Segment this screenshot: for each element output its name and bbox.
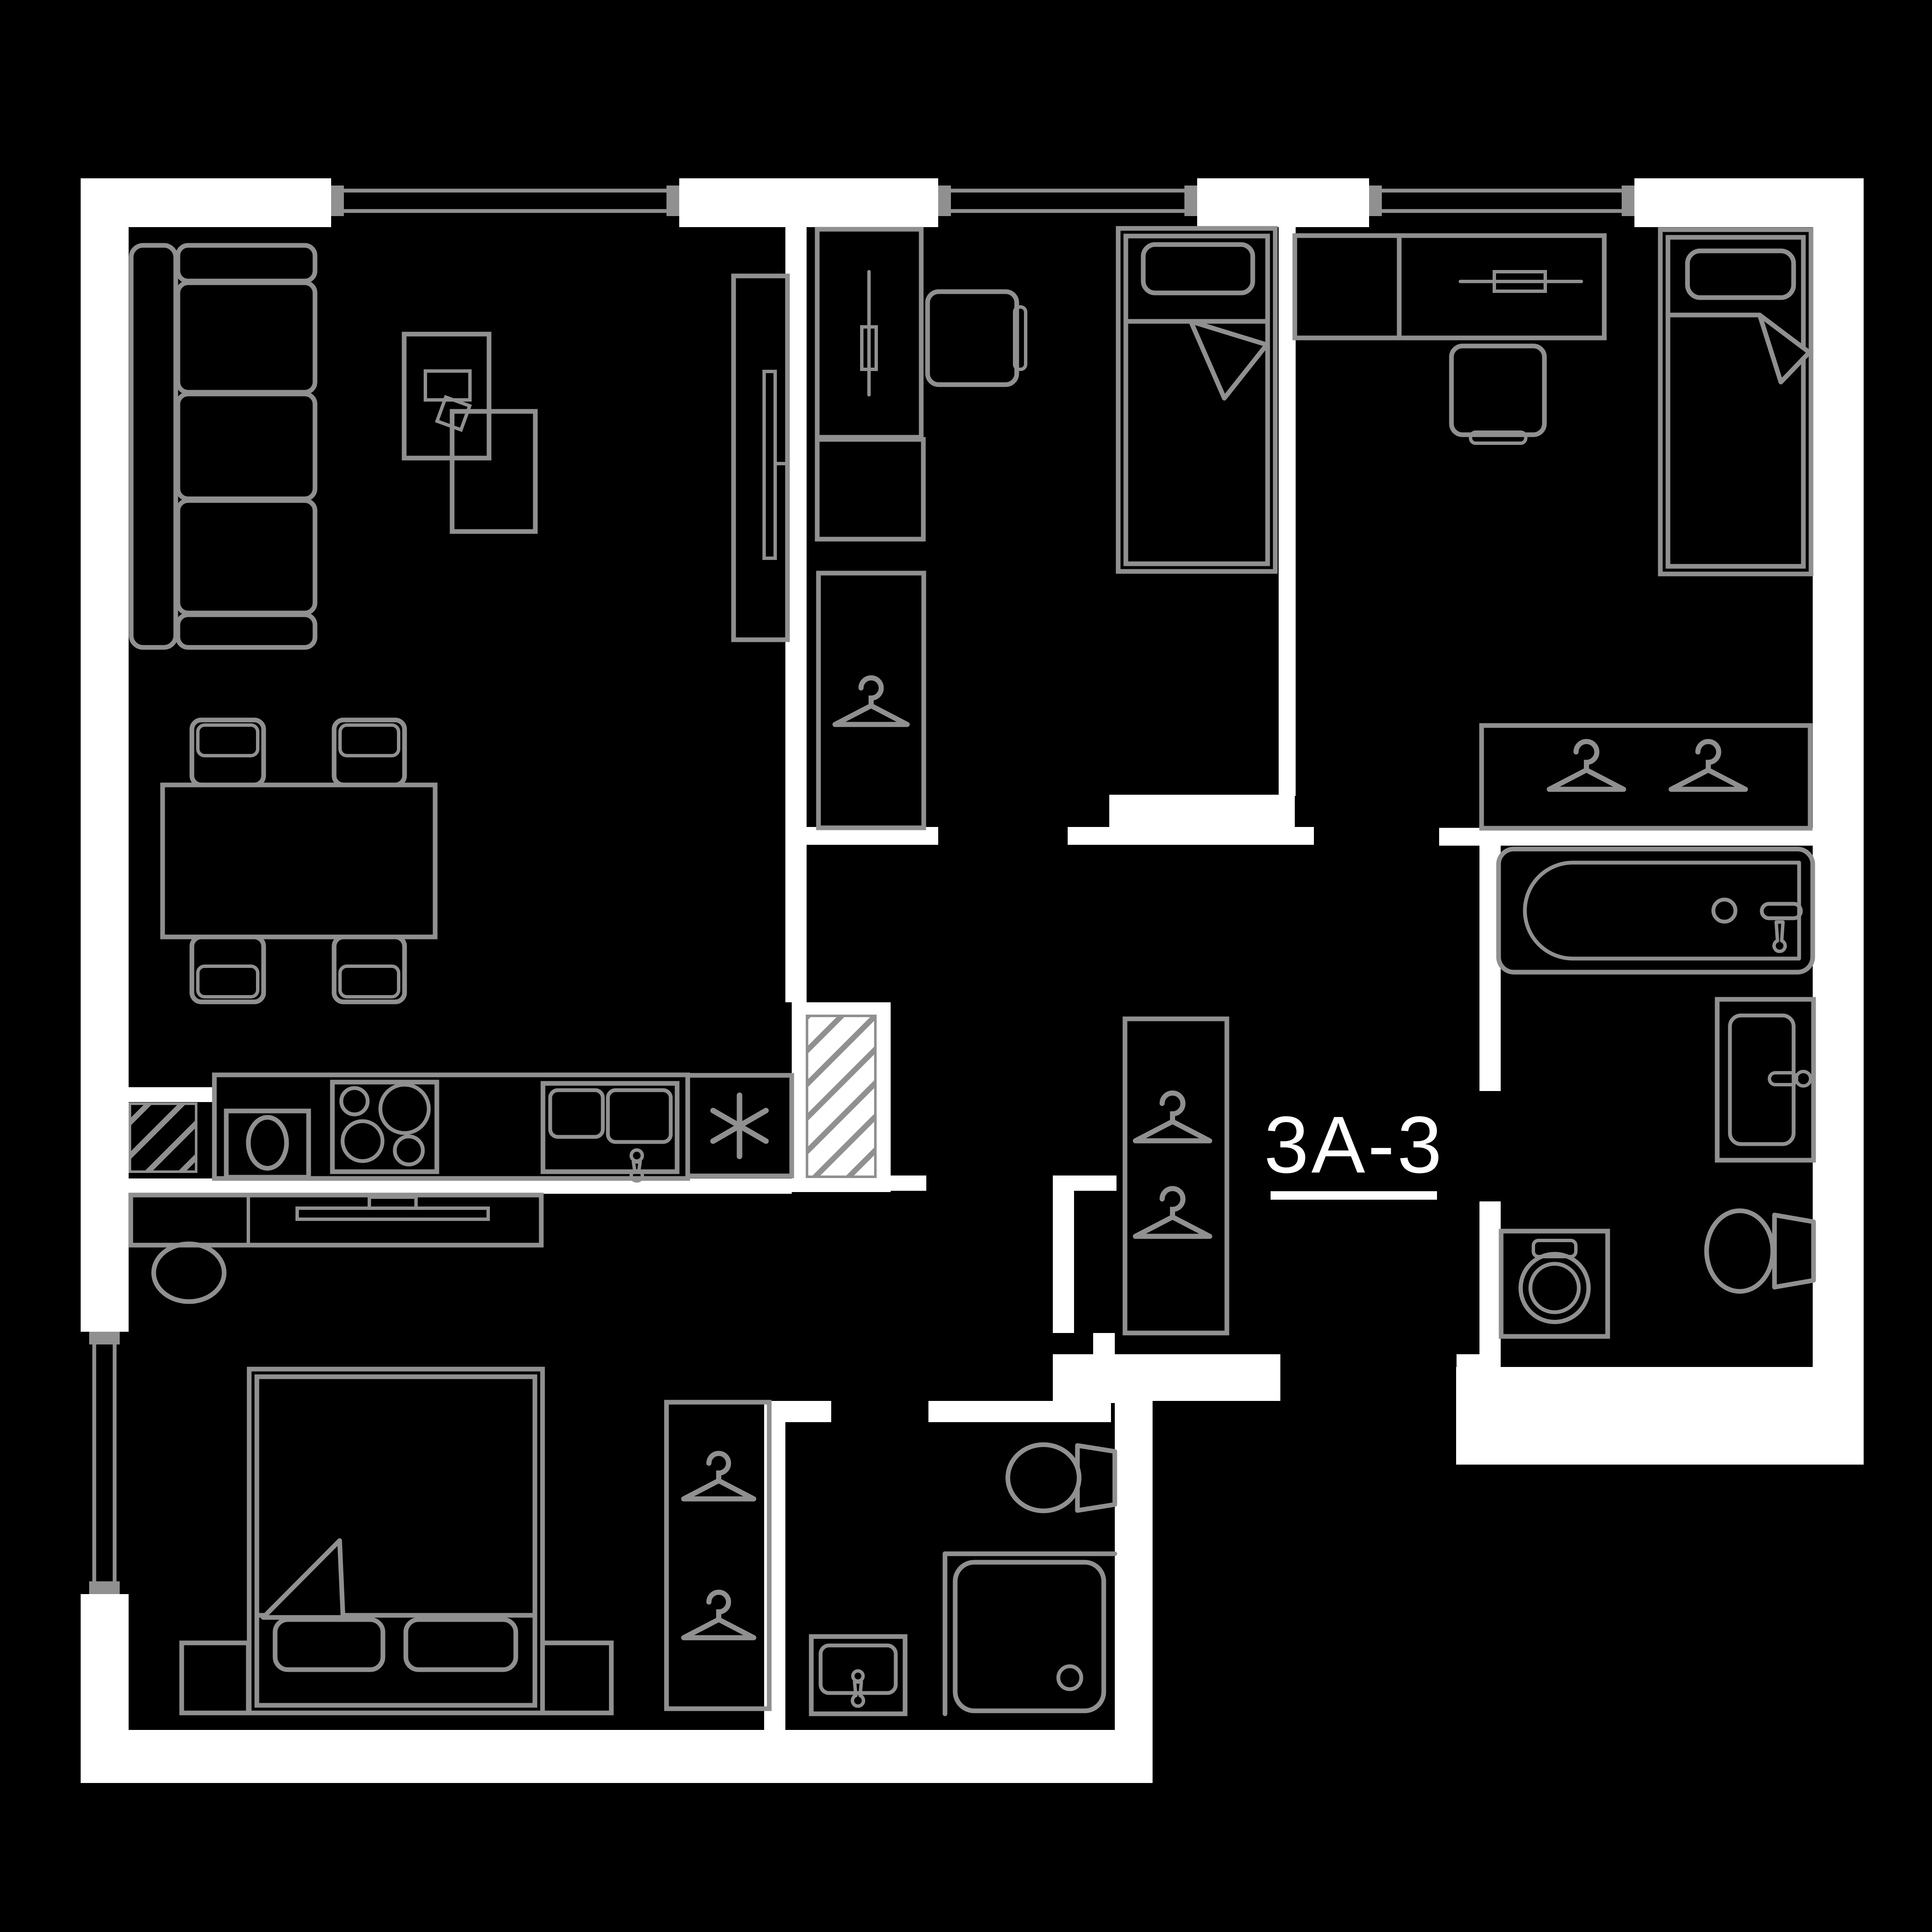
sofa-seat <box>178 394 315 499</box>
desk-chair <box>1451 346 1544 435</box>
hanger-icon <box>709 1454 728 1481</box>
wardrobe <box>666 1402 769 1709</box>
floor-plan-svg: 3A-3 <box>0 0 1932 1932</box>
dining-chair-back <box>340 966 399 997</box>
hanger-icon <box>1550 770 1624 790</box>
toilet-tank <box>1775 1215 1814 1287</box>
hall-wardrobe <box>1125 1019 1227 1333</box>
dresser-handle <box>369 1197 416 1208</box>
sofa-seat <box>178 283 315 392</box>
dining-chair <box>192 937 264 1002</box>
vanity-tap <box>1796 1071 1811 1086</box>
shaft-hatch <box>130 1104 196 1172</box>
shaft-hatch <box>807 1016 875 1177</box>
dining-chair <box>334 937 405 1002</box>
label-layer: 3A-3 <box>1264 1100 1444 1200</box>
bathtub-tap-drop <box>1774 922 1785 951</box>
window-symbol-cap <box>1369 186 1382 216</box>
hanger-icon <box>1162 1189 1183 1217</box>
burner <box>395 1136 423 1164</box>
hanger-icon <box>684 1481 754 1499</box>
wall <box>81 1730 1153 1783</box>
wall <box>928 1401 1111 1422</box>
hanger-icon <box>1136 1122 1210 1141</box>
wall <box>1068 827 1314 845</box>
kitchen-sink-basin <box>248 1117 287 1168</box>
wall <box>679 178 938 227</box>
tv-cabinet <box>734 276 787 640</box>
wall <box>1053 1354 1280 1401</box>
wall <box>81 178 129 1332</box>
sofa-armrest <box>178 615 315 647</box>
furniture-layer <box>131 228 1814 1714</box>
burner <box>343 1121 382 1161</box>
wall <box>1109 795 1295 828</box>
desk-chair <box>928 292 1017 385</box>
double-sink <box>543 1083 677 1172</box>
blanket-fold <box>1191 321 1267 398</box>
bathtub <box>1499 849 1813 972</box>
blanket-fold <box>263 1541 343 1617</box>
coffee-table-2 <box>452 411 535 532</box>
chair-back <box>1471 432 1526 443</box>
toilet-tank <box>1077 1445 1115 1510</box>
shafts-layer <box>130 1016 875 1177</box>
shower-drain <box>1058 1666 1081 1689</box>
dining-chair <box>192 720 264 785</box>
hanger-icon <box>1698 742 1719 770</box>
windows-layer <box>89 186 1634 1594</box>
wall <box>1115 1375 1153 1783</box>
balcony-door-symbol-cap <box>89 1581 120 1594</box>
burner <box>380 1085 429 1133</box>
wall <box>1479 1201 1501 1401</box>
hanger-icon <box>1162 1093 1183 1122</box>
sink-basin <box>821 1645 896 1693</box>
window-symbol-cap <box>666 186 679 216</box>
wall <box>1053 1176 1074 1333</box>
washer-drum-inner <box>1530 1264 1579 1312</box>
cabinet <box>817 439 923 539</box>
dining-table <box>163 785 435 937</box>
pillow <box>406 1620 516 1670</box>
window-symbol-cap <box>1184 186 1197 216</box>
pillow <box>1143 245 1253 293</box>
wall <box>1456 1367 1864 1465</box>
dining-chair <box>334 720 405 785</box>
cabinet <box>1295 236 1399 338</box>
sink-tap <box>853 1671 863 1681</box>
bathtub-drain <box>1713 900 1735 922</box>
window-symbol-cap <box>331 186 344 216</box>
bathtub-basin <box>1525 863 1799 959</box>
sofa-armrest <box>178 245 315 281</box>
hanger-icon <box>835 706 907 724</box>
bathtub-tap <box>1762 904 1801 918</box>
hanger-icon <box>709 1592 728 1620</box>
window-symbol-cap <box>938 186 951 216</box>
unit-label: 3A-3 <box>1264 1100 1444 1190</box>
wall <box>1813 178 1864 1465</box>
wall <box>891 1176 926 1191</box>
vanity-sink <box>1730 1015 1794 1144</box>
dining-chair-back <box>340 725 399 756</box>
nightstand <box>543 1643 611 1713</box>
chair-back <box>1015 307 1026 369</box>
toilet-bowl <box>1707 1211 1773 1291</box>
hanger-icon <box>1576 742 1597 770</box>
dining-chair-back <box>198 966 258 997</box>
pillow <box>1687 251 1794 298</box>
wall <box>1197 178 1369 227</box>
nightstand <box>182 1643 248 1713</box>
hanger-icon <box>861 678 881 706</box>
desk <box>1399 236 1604 338</box>
toilet-bowl <box>1008 1445 1079 1511</box>
pouf <box>154 1244 224 1302</box>
unit-label-underline <box>1271 1191 1437 1200</box>
shower-tray <box>955 1562 1104 1711</box>
hanger-icon <box>1136 1217 1210 1237</box>
pillow <box>275 1620 383 1670</box>
sink-basin <box>608 1090 671 1142</box>
hanger-icon <box>1671 770 1746 790</box>
wall <box>1074 1176 1116 1191</box>
balcony-door-symbol-cap <box>89 1332 120 1344</box>
burner <box>341 1088 368 1114</box>
table-decor-book <box>425 371 470 400</box>
sink-basin <box>550 1090 603 1137</box>
sink-tap <box>631 1150 642 1161</box>
floor-plan: 3A-3 <box>0 0 1932 1932</box>
tv-screen <box>764 371 775 558</box>
window-symbol-cap <box>1622 186 1634 216</box>
wall <box>83 1087 214 1102</box>
wardrobe <box>1482 726 1810 828</box>
walls-layer <box>81 178 1864 1783</box>
sofa-backrest <box>131 245 176 647</box>
sofa-seat <box>178 501 315 613</box>
hanger-icon <box>684 1620 754 1638</box>
dining-chair-back <box>198 725 258 756</box>
